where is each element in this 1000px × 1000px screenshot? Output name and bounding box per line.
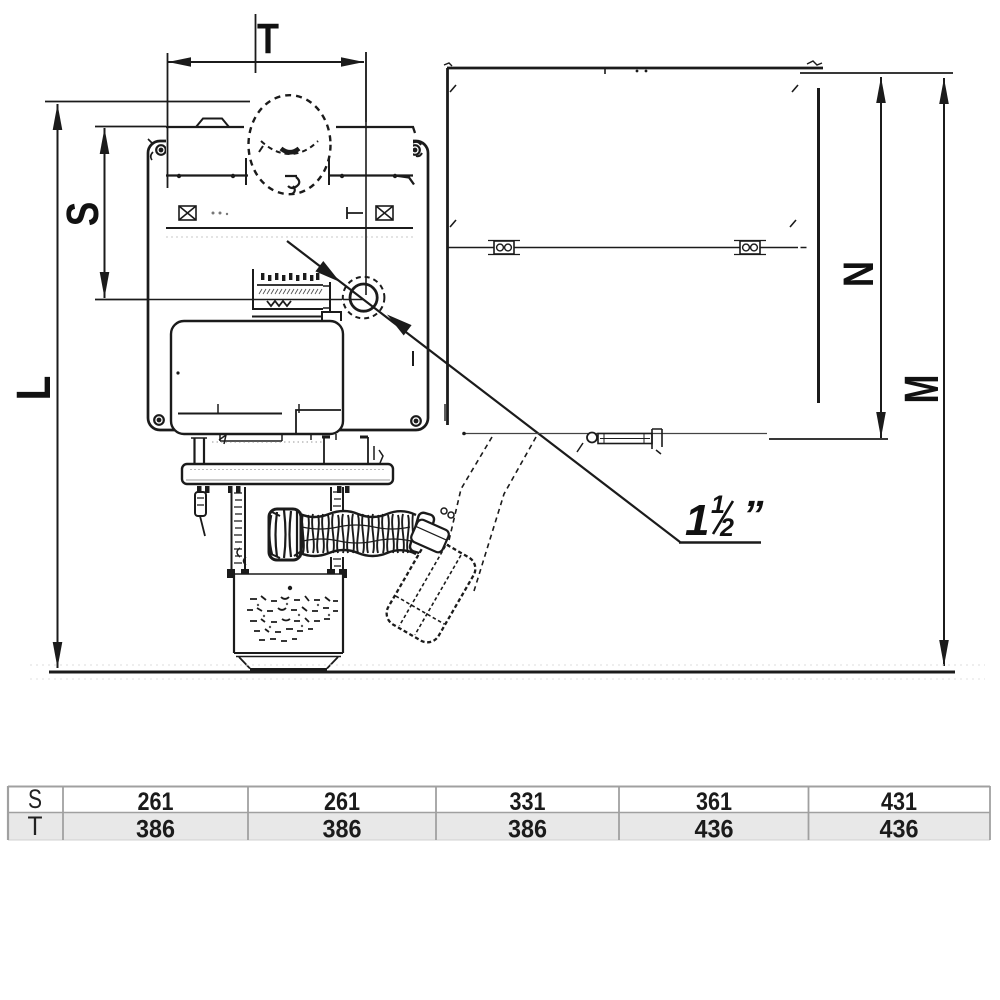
svg-text:S: S [28,784,42,814]
svg-text:331: 331 [510,788,546,816]
svg-text:N: N [835,261,882,287]
svg-text:M: M [894,375,948,404]
svg-text:261: 261 [324,788,360,816]
svg-text:386: 386 [508,816,547,844]
svg-text:261: 261 [138,788,174,816]
svg-text:T: T [28,811,43,841]
svg-text:436: 436 [695,816,734,844]
svg-text:1: 1 [685,496,709,545]
svg-text:2: 2 [719,514,734,542]
svg-text:431: 431 [881,788,917,816]
svg-text:L: L [8,376,61,401]
svg-text:T: T [257,15,279,63]
svg-text:S: S [58,202,108,227]
svg-text:436: 436 [880,816,919,844]
svg-text:”: ” [743,492,764,538]
svg-text:361: 361 [696,788,732,816]
svg-text:386: 386 [323,816,362,844]
svg-text:386: 386 [136,816,175,844]
